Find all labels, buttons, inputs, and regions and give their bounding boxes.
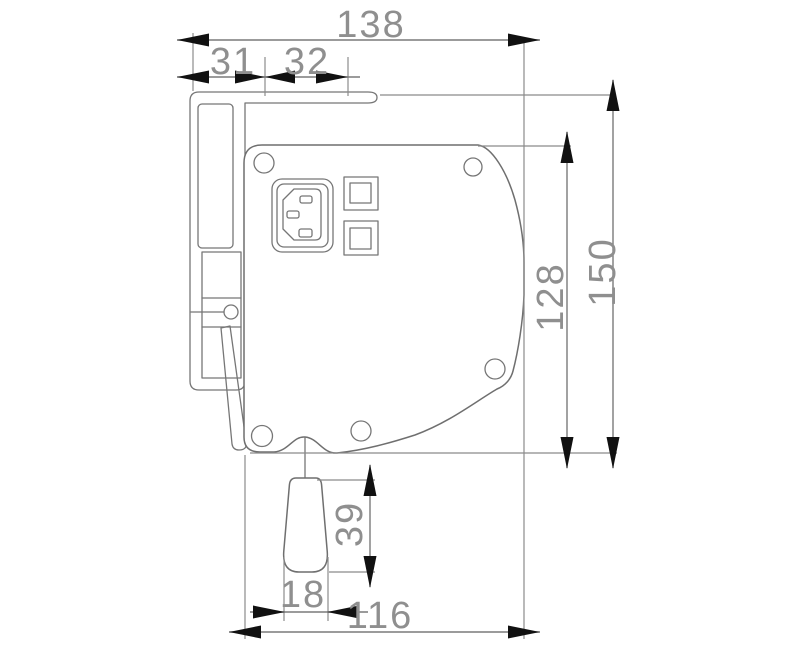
dim-label-39: 39 — [329, 501, 371, 547]
dimension-128: 128 — [530, 131, 574, 469]
dimensional-drawing: 138 31 32 150 128 39 18 116 — [0, 0, 800, 650]
arrowhead-top — [561, 131, 574, 163]
latch-pin-hole — [224, 305, 238, 319]
end-cap-body — [244, 145, 524, 453]
technical-drawing-page: 138 31 32 150 128 39 18 116 — [0, 0, 800, 650]
dimension-39: 39 — [329, 464, 377, 588]
pull-assembly — [284, 438, 328, 572]
dim-label-116: 116 — [347, 595, 414, 637]
dim-label-31: 31 — [210, 41, 256, 83]
bracket-slot — [198, 104, 233, 248]
dim-label-150: 150 — [582, 237, 624, 306]
dimension-31-32: 31 32 — [177, 41, 360, 84]
end-cap — [244, 145, 524, 453]
pull-handle — [284, 478, 328, 572]
dimension-116: 116 — [229, 595, 540, 639]
dim-label-138: 138 — [336, 4, 405, 46]
dim-label-32: 32 — [284, 41, 330, 83]
dim-label-128: 128 — [530, 262, 572, 331]
dim-label-18: 18 — [280, 574, 326, 616]
dimension-150: 150 — [582, 79, 624, 469]
